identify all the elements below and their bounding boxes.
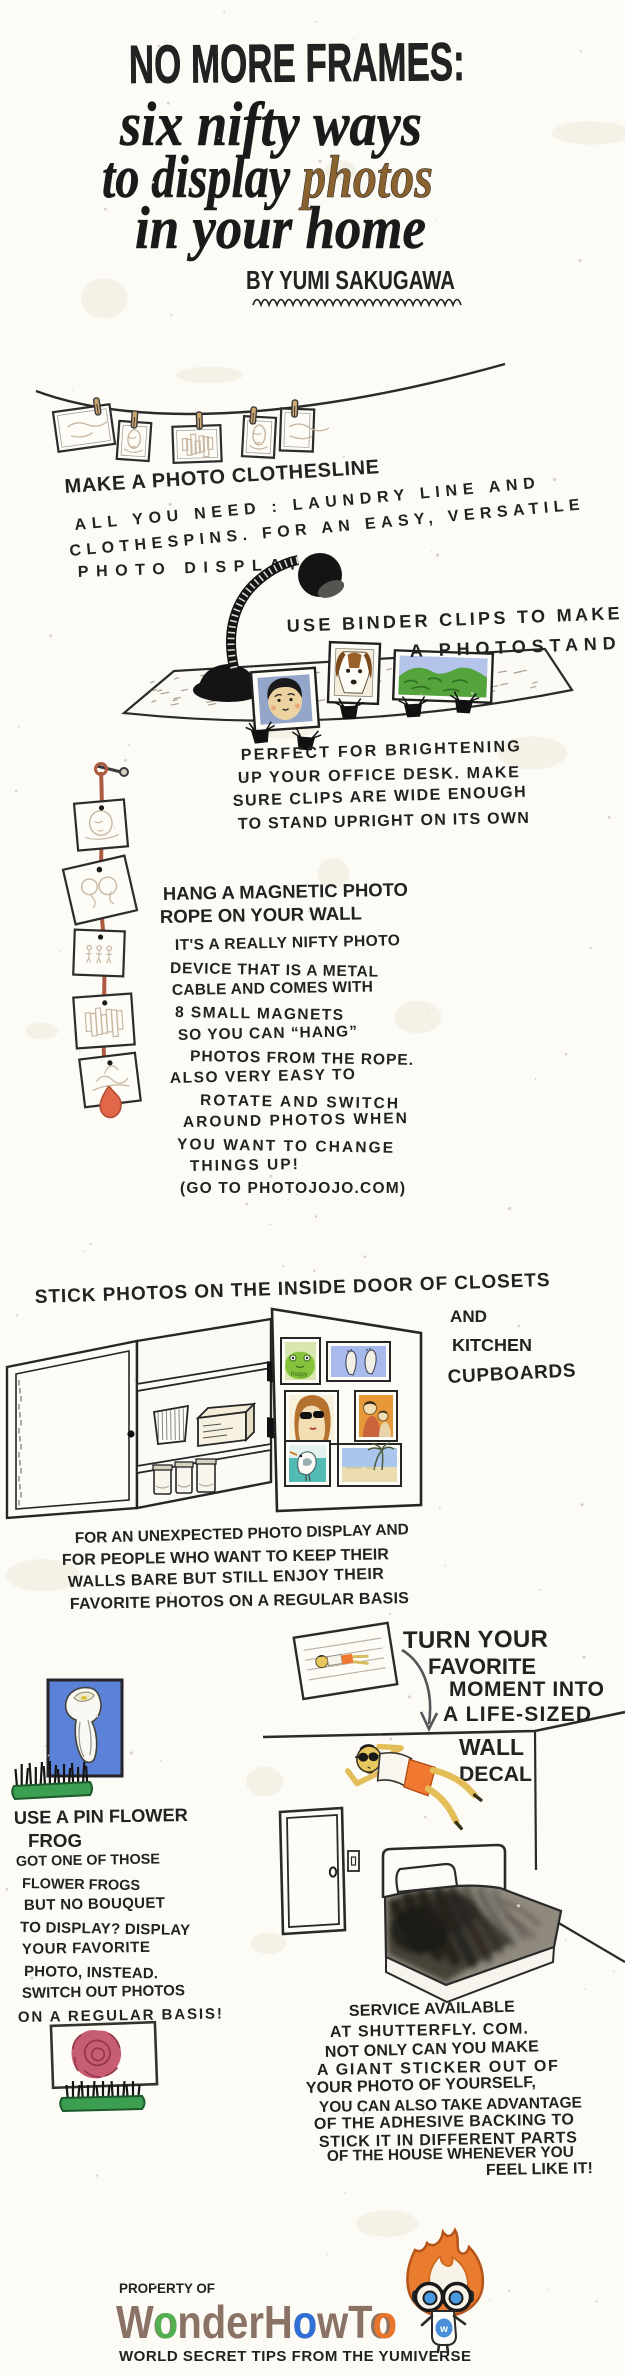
svg-text:AND: AND: [450, 1307, 487, 1326]
svg-text:o: o: [293, 2297, 317, 2348]
svg-text:CUPBOARDS: CUPBOARDS: [447, 1360, 576, 1388]
svg-text:PHOTO, INSTEAD.: PHOTO, INSTEAD.: [24, 1963, 158, 1982]
svg-text:NOT ONLY CAN YOU MAKE: NOT ONLY CAN YOU MAKE: [325, 2038, 540, 2061]
svg-text:FROG: FROG: [28, 1830, 82, 1851]
svg-text:ROTATE AND SWITCH: ROTATE AND SWITCH: [200, 1092, 398, 1112]
svg-text:TO DISPLAY? DISPLAY: TO DISPLAY? DISPLAY: [20, 1919, 190, 1939]
svg-text:MOMENT INTO: MOMENT INTO: [449, 1678, 604, 1701]
svg-text:SERVICE AVAILABLE: SERVICE AVAILABLE: [349, 1999, 516, 2020]
svg-text:TURN YOUR: TURN YOUR: [403, 1626, 548, 1654]
svg-text:BUT NO BOUQUET: BUT NO BOUQUET: [24, 1895, 165, 1914]
svg-text:FEEL LIKE IT!: FEEL LIKE IT!: [486, 2160, 593, 2179]
svg-text:(GO TO PHOTOJOJO.COM): (GO TO PHOTOJOJO.COM): [180, 1180, 405, 1197]
svg-text:IT'S A REALLY NIFTY PHOTO: IT'S A REALLY NIFTY PHOTO: [175, 932, 400, 954]
svg-text:TO STAND UPRIGHT ON ITS OWN: TO STAND UPRIGHT ON ITS OWN: [238, 810, 529, 833]
svg-text:WALLS BARE BUT STILL ENJOY THE: WALLS BARE BUT STILL ENJOY THEIR: [68, 1566, 385, 1591]
svg-text:USE BINDER CLIPS TO MAKE: USE BINDER CLIPS TO MAKE: [286, 603, 620, 636]
svg-text:YOU WANT TO CHANGE: YOU WANT TO CHANGE: [177, 1136, 393, 1157]
svg-text:in your home: in your home: [135, 196, 426, 262]
svg-text:A PHOTOSTAND: A PHOTOSTAND: [409, 633, 616, 661]
svg-text:SWITCH OUT PHOTOS: SWITCH OUT PHOTOS: [22, 1982, 185, 2002]
svg-text:KITCHEN: KITCHEN: [452, 1335, 532, 1355]
svg-text:FOR PEOPLE WHO WANT TO KEEP TH: FOR PEOPLE WHO WANT TO KEEP THEIR: [62, 1546, 390, 1569]
svg-text:BY YUMI SAKUGAWA: BY YUMI SAKUGAWA: [246, 266, 455, 295]
svg-text:STICK PHOTOS ON THE INSIDE DOO: STICK PHOTOS ON THE INSIDE DOOR OF CLOSE…: [34, 1270, 549, 1308]
svg-text:FAVORITE: FAVORITE: [428, 1654, 536, 1679]
svg-text:USE A PIN FLOWER: USE A PIN FLOWER: [14, 1804, 188, 1828]
svg-text:PHOTOS FROM THE ROPE.: PHOTOS FROM THE ROPE.: [190, 1048, 413, 1069]
svg-text:DEVICE THAT IS A METAL: DEVICE THAT IS A METAL: [170, 960, 378, 981]
svg-text:PROPERTY OF: PROPERTY OF: [119, 2281, 215, 2296]
svg-text:WORLD SECRET TIPS FROM THE YUM: WORLD SECRET TIPS FROM THE YUMIVERSE: [119, 2348, 471, 2365]
svg-text:THINGS UP!: THINGS UP!: [190, 1156, 298, 1175]
svg-text:DECAL: DECAL: [459, 1763, 532, 1786]
svg-text:NO MORE FRAMES:: NO MORE FRAMES:: [129, 31, 465, 94]
svg-text:8 SMALL MAGNETS: 8 SMALL MAGNETS: [175, 1004, 343, 1024]
svg-text:o: o: [373, 2297, 397, 2348]
svg-text:FLOWER FROGS: FLOWER FROGS: [22, 1876, 141, 1894]
svg-text:SO YOU CAN “HANG”: SO YOU CAN “HANG”: [178, 1023, 357, 1044]
svg-text:YOUR FAVORITE: YOUR FAVORITE: [22, 1939, 150, 1958]
svg-text:SURE CLIPS ARE WIDE ENOUGH: SURE CLIPS ARE WIDE ENOUGH: [233, 784, 526, 810]
svg-text:FAVORITE PHOTOS ON A REGULAR B: FAVORITE PHOTOS ON A REGULAR BASIS: [70, 1590, 410, 1613]
svg-text:UP YOUR OFFICE DESK. MAKE: UP YOUR OFFICE DESK. MAKE: [238, 764, 520, 787]
svg-text:FOR AN UNEXPECTED PHOTO DISPLA: FOR AN UNEXPECTED PHOTO DISPLAY AND: [75, 1521, 409, 1547]
svg-text:froggy: froggy: [291, 1372, 308, 1378]
svg-text:ROPE ON YOUR WALL: ROPE ON YOUR WALL: [160, 902, 362, 927]
svg-text:HANG A MAGNETIC PHOTO: HANG A MAGNETIC PHOTO: [163, 879, 408, 904]
svg-text:w: w: [439, 2324, 448, 2335]
svg-text:AT SHUTTERFLY. COM.: AT SHUTTERFLY. COM.: [330, 2021, 528, 2041]
svg-text:ALSO VERY EASY TO: ALSO VERY EASY TO: [170, 1066, 355, 1087]
svg-text:AROUND PHOTOS WHEN: AROUND PHOTOS WHEN: [183, 1110, 407, 1131]
svg-text:PERFECT FOR BRIGHTENING: PERFECT FOR BRIGHTENING: [241, 738, 520, 764]
svg-text:MAKE A PHOTO CLOTHESLINE: MAKE A PHOTO CLOTHESLINE: [64, 456, 380, 498]
svg-text:CABLE AND COMES WITH: CABLE AND COMES WITH: [172, 978, 373, 999]
svg-text:o: o: [154, 2297, 178, 2348]
svg-text:WALL: WALL: [459, 1734, 524, 1760]
svg-text:GOT ONE OF THOSE: GOT ONE OF THOSE: [16, 1851, 161, 1870]
